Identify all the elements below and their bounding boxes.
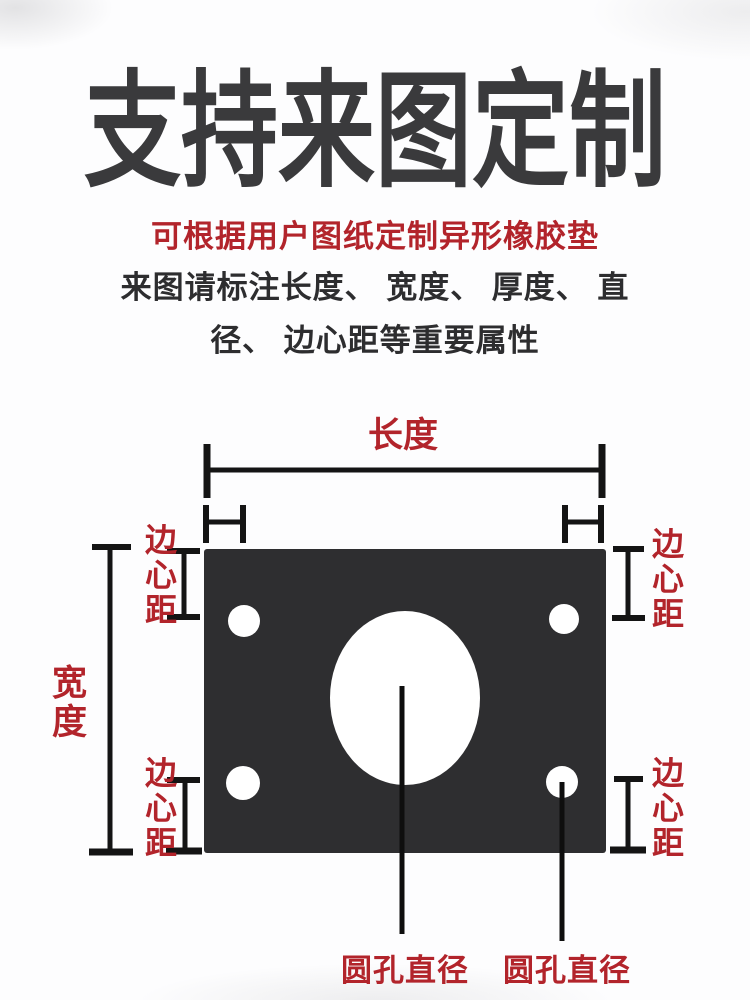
hole-diameter-label-center: 圆孔直径 [339,945,471,990]
edge-distance-label-top-right: 边心距 [643,527,689,632]
custom-order-poster: 支持来图定制 可根据用户图纸定制异形橡胶垫 来图请标注长度、 宽度、 厚度、 直… [0,0,750,1000]
hole-diameter-label-corner: 圆孔直径 [501,945,633,990]
hole-bottom-left [226,766,260,800]
edge-distance-label-bottom-left: 边心距 [136,756,182,861]
edge-distance-label-bottom-right: 边心距 [643,756,689,861]
length-dimension-label: 长度 [343,407,463,458]
width-dimension-label: 宽度 [41,664,92,742]
hole-top-right [549,604,579,634]
gasket-dimension-diagram [0,0,750,1000]
center-hole [330,611,480,785]
edge-distance-label-top-left: 边心距 [136,523,182,628]
hole-top-left [228,605,260,637]
